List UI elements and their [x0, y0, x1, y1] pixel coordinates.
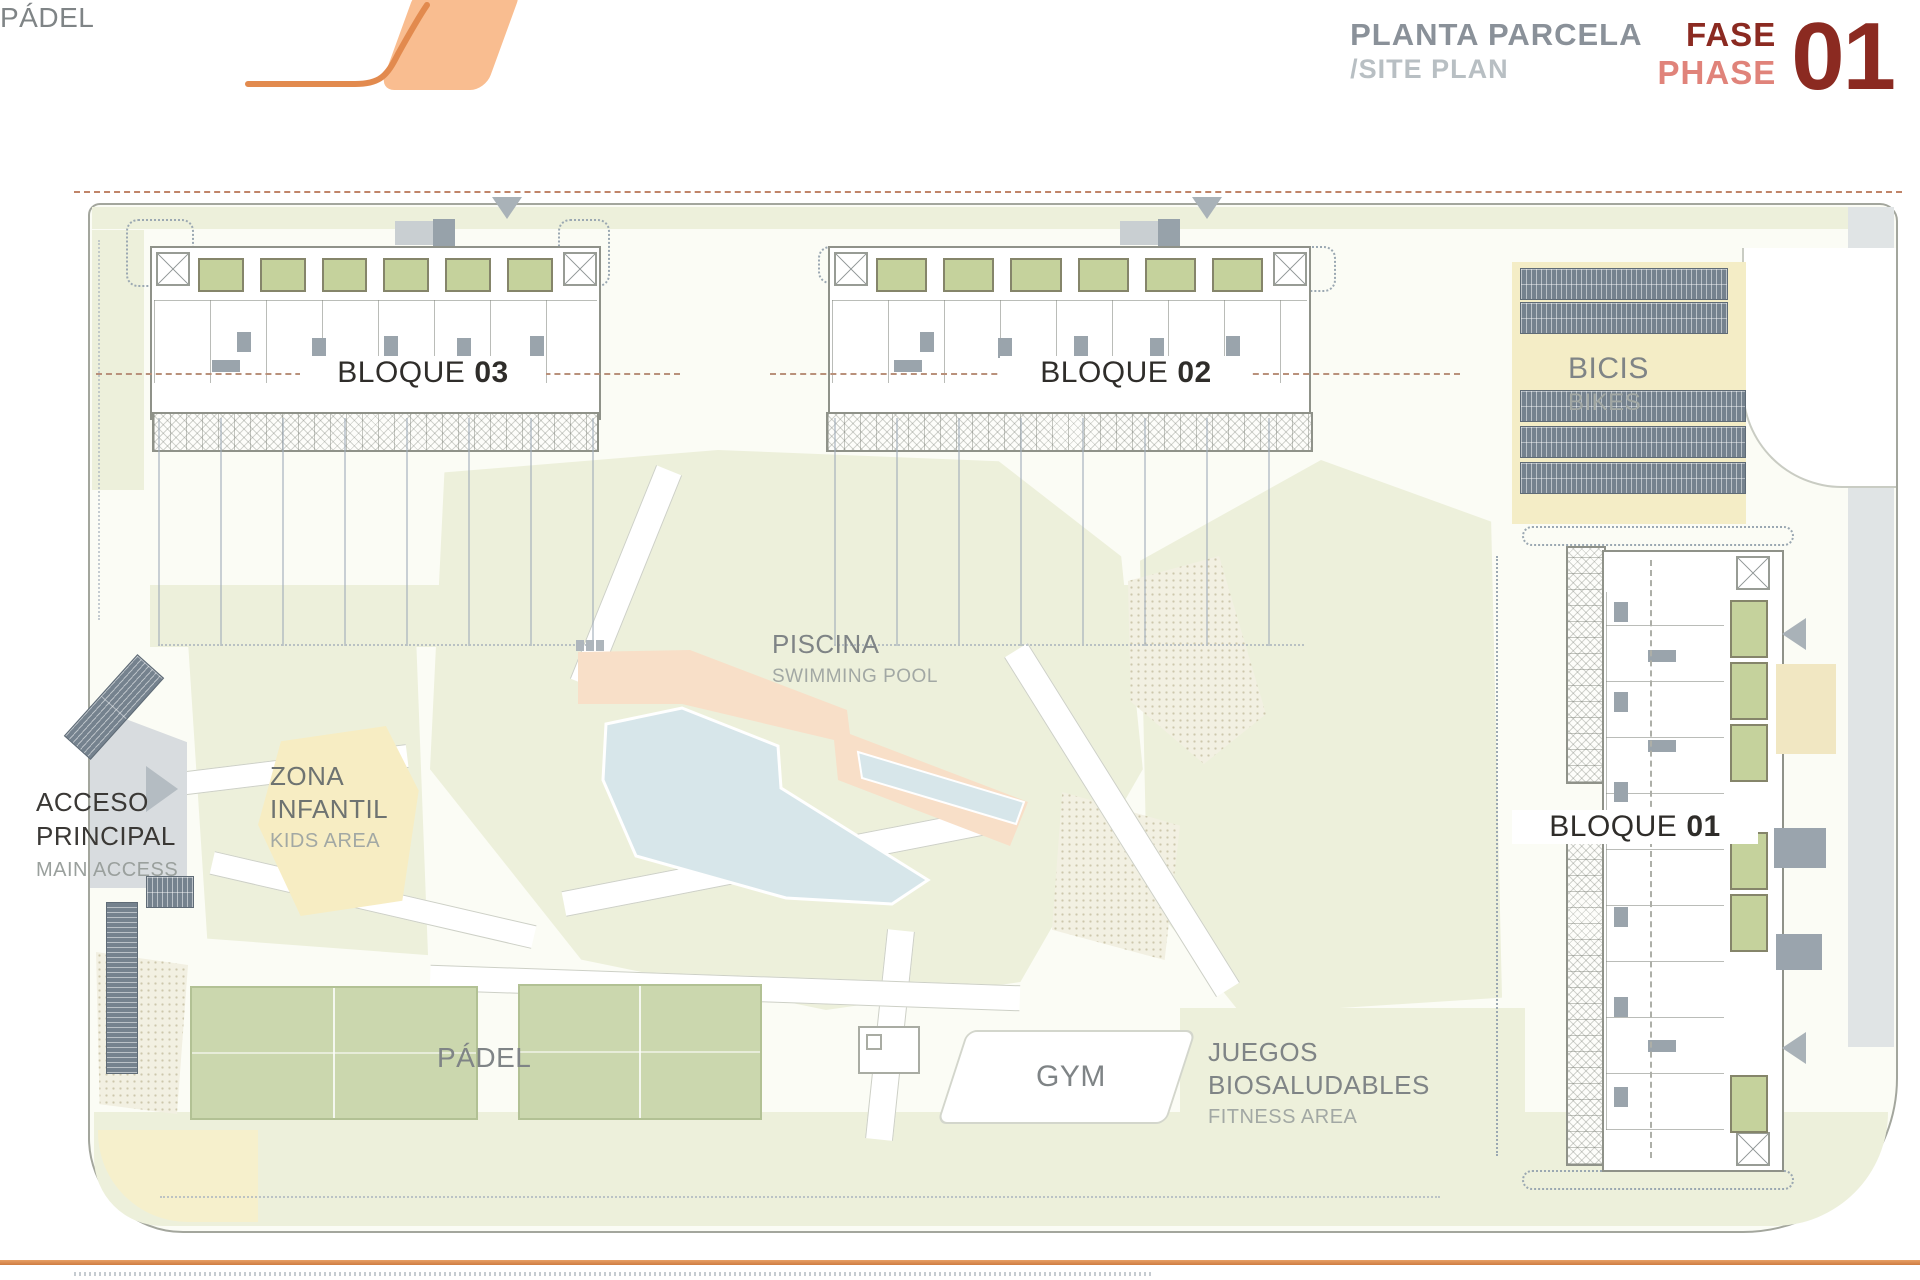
terrace [1078, 258, 1129, 292]
terrace [322, 258, 368, 292]
hedge-row [160, 1196, 1440, 1198]
terrace [1730, 724, 1768, 782]
stair-core [563, 252, 597, 286]
terrace [260, 258, 306, 292]
parking-rack [106, 902, 138, 1074]
terrace [876, 258, 927, 292]
balcony-marker [1614, 907, 1628, 927]
terrace [507, 258, 553, 292]
label-bicis: BICIS BIKES [1568, 350, 1649, 418]
balcony-marker [1648, 740, 1676, 752]
utility-pad [1776, 934, 1822, 970]
label-bloque-02: BLOQUE02 [1000, 356, 1252, 390]
block-number: 01 [1686, 810, 1720, 843]
balcony-marker [1614, 782, 1628, 802]
rooftop-element [1120, 221, 1158, 245]
bike-rack [1520, 302, 1728, 334]
rooftop-element [1158, 219, 1180, 246]
padel-es: PÁDEL [437, 1040, 531, 1075]
terrace [198, 258, 244, 292]
equipment-box [858, 1026, 920, 1074]
hedge-row [1496, 556, 1498, 1156]
zona-infantil-en: KIDS AREA [270, 829, 405, 854]
entrance-arrow-icon [1782, 1032, 1806, 1064]
stair-core [834, 252, 868, 286]
label-bloque-01: BLOQUE01 [1512, 810, 1758, 844]
bicis-en: BIKES [1568, 388, 1649, 418]
building-bloque-03 [150, 246, 601, 420]
entrance-arrow-icon [1782, 618, 1806, 650]
acceso-es: ACCESO PRINCIPAL [36, 786, 186, 854]
bicis-es: BICIS [1568, 350, 1649, 388]
terrace [1145, 258, 1196, 292]
balcony-marker [1614, 997, 1628, 1017]
balcony-marker [998, 338, 1012, 358]
padel-court-right [518, 984, 762, 1120]
terrace [1212, 258, 1263, 292]
ground-terraces-strip [1566, 842, 1606, 1166]
block-name: BLOQUE [337, 356, 465, 389]
gym-es: GYM [1036, 1058, 1106, 1096]
padel-court-left [190, 986, 478, 1120]
footer-disclaimer-microtext [74, 1272, 1154, 1276]
label-padel: PÁDEL [0, 0, 94, 35]
terrace [445, 258, 491, 292]
roof-terraces [198, 258, 553, 292]
rooftop-element [433, 219, 455, 246]
axis-line [1650, 560, 1652, 1158]
balcony-marker [237, 332, 251, 352]
label-bloque-03: BLOQUE03 [300, 356, 546, 390]
stair-core [1273, 252, 1307, 286]
stair-core [156, 252, 190, 286]
block-name: BLOQUE [1549, 810, 1677, 843]
balcony-marker [530, 336, 544, 356]
bike-rack [1520, 426, 1746, 458]
entrance-arrow-icon [1192, 197, 1222, 219]
ground-terraces-strip [1566, 546, 1606, 784]
pool-water [603, 708, 928, 904]
terrace [1730, 600, 1768, 658]
balcony-marker [920, 332, 934, 352]
bike-rack [1520, 462, 1746, 494]
balcony-marker [1614, 692, 1628, 712]
property-limit-dashed-line [74, 191, 1902, 193]
lawn-top-strip [92, 207, 1890, 229]
label-padel-pos: PÁDEL [437, 1040, 531, 1075]
label-piscina: PISCINA SWIMMING POOL [772, 628, 938, 688]
equipment-marker [866, 1034, 882, 1050]
balcony-marker [1648, 1040, 1676, 1052]
terrace [1010, 258, 1061, 292]
zona-infantil-es: ZONA INFANTIL [270, 760, 405, 825]
hedge-planter [1522, 526, 1794, 546]
sand-patch [1776, 664, 1836, 754]
balcony-marker [384, 336, 398, 356]
acceso-en: MAIN ACCESS [36, 858, 186, 883]
private-yards [834, 418, 1304, 646]
terrace [383, 258, 429, 292]
balcony-marker [212, 360, 240, 372]
hedge-planter [1522, 1170, 1794, 1190]
hedge-row [98, 240, 100, 620]
juegos-es: JUEGOS BIOSALUDABLES [1208, 1036, 1428, 1101]
terrace [1730, 662, 1768, 720]
balcony-marker [894, 360, 922, 372]
balcony-marker [1150, 338, 1164, 358]
pool-steps [576, 640, 604, 651]
utility-pad [1774, 828, 1826, 868]
footer-accent-line [0, 1260, 1920, 1265]
label-zona-infantil: ZONA INFANTIL KIDS AREA [270, 760, 405, 854]
balcony-marker [1614, 1087, 1628, 1107]
balcony-marker [1226, 336, 1240, 356]
stair-core [1736, 556, 1770, 590]
piscina-en: SWIMMING POOL [772, 665, 938, 689]
road-top-right-curve [1742, 248, 1896, 488]
roof-terraces [876, 258, 1263, 292]
block-number: 03 [474, 356, 508, 389]
block-number: 02 [1177, 356, 1211, 389]
terrace [1730, 894, 1768, 952]
balcony-marker [457, 338, 471, 358]
balcony-marker [1614, 602, 1628, 622]
juegos-en: FITNESS AREA [1208, 1105, 1428, 1130]
entrance-arrow-icon [492, 197, 522, 219]
building-bloque-02 [828, 246, 1311, 420]
label-juegos: JUEGOS BIOSALUDABLES FITNESS AREA [1208, 1036, 1428, 1130]
terrace [943, 258, 994, 292]
stair-core [1736, 1132, 1770, 1166]
rooftop-element [395, 221, 433, 245]
site-plan: BLOQUE03 BLOQUE02 [0, 0, 1920, 1280]
balcony-marker [1648, 650, 1676, 662]
block-name: BLOQUE [1040, 356, 1168, 389]
bike-rack [1520, 268, 1728, 300]
piscina-es: PISCINA [772, 628, 938, 661]
label-acceso-principal: ACCESO PRINCIPAL MAIN ACCESS [36, 786, 186, 883]
label-gym: GYM [1036, 1058, 1106, 1096]
balcony-marker [312, 338, 326, 358]
balcony-marker [1074, 336, 1088, 356]
terrace [1730, 1075, 1768, 1133]
private-yards [158, 418, 594, 646]
site-plan-page: { "header": { "title_es": "PLANTA PARCEL… [0, 0, 1920, 1280]
